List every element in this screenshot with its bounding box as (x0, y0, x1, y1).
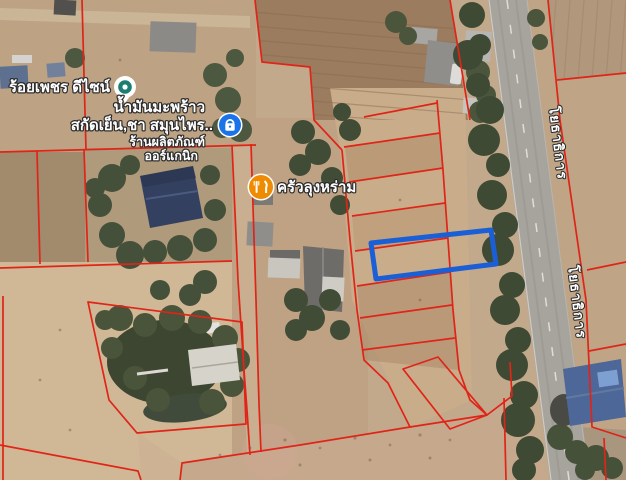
poi-label: ครัวลุงหร่าม (277, 179, 356, 197)
poi-label-line4: ออร์แกนิก (145, 148, 198, 163)
poi-label: ร้อยเพชร ดีไซน์ (9, 77, 111, 96)
poi-label-line2: สกัดเย็น,ชา สมุนไพร.. (71, 115, 213, 135)
lock-badge-icon[interactable] (218, 113, 243, 138)
navy-roof-house (140, 166, 203, 228)
poi-label-line3: ร้านผลิตภัณฑ์ (129, 134, 205, 149)
map-viewport[interactable]: โยธาธิการ โยธาธิการ ร้อยเพชร ดีไซน์ น้ำม… (0, 0, 626, 480)
poi-label-line1: น้ำมันมะพร้าว (113, 95, 205, 116)
blue-roof-building (563, 359, 626, 426)
satellite-map-canvas[interactable]: โยธาธิการ โยธาธิการ ร้อยเพชร ดีไซน์ น้ำม… (0, 0, 626, 480)
restaurant-pin-icon[interactable] (248, 174, 275, 201)
